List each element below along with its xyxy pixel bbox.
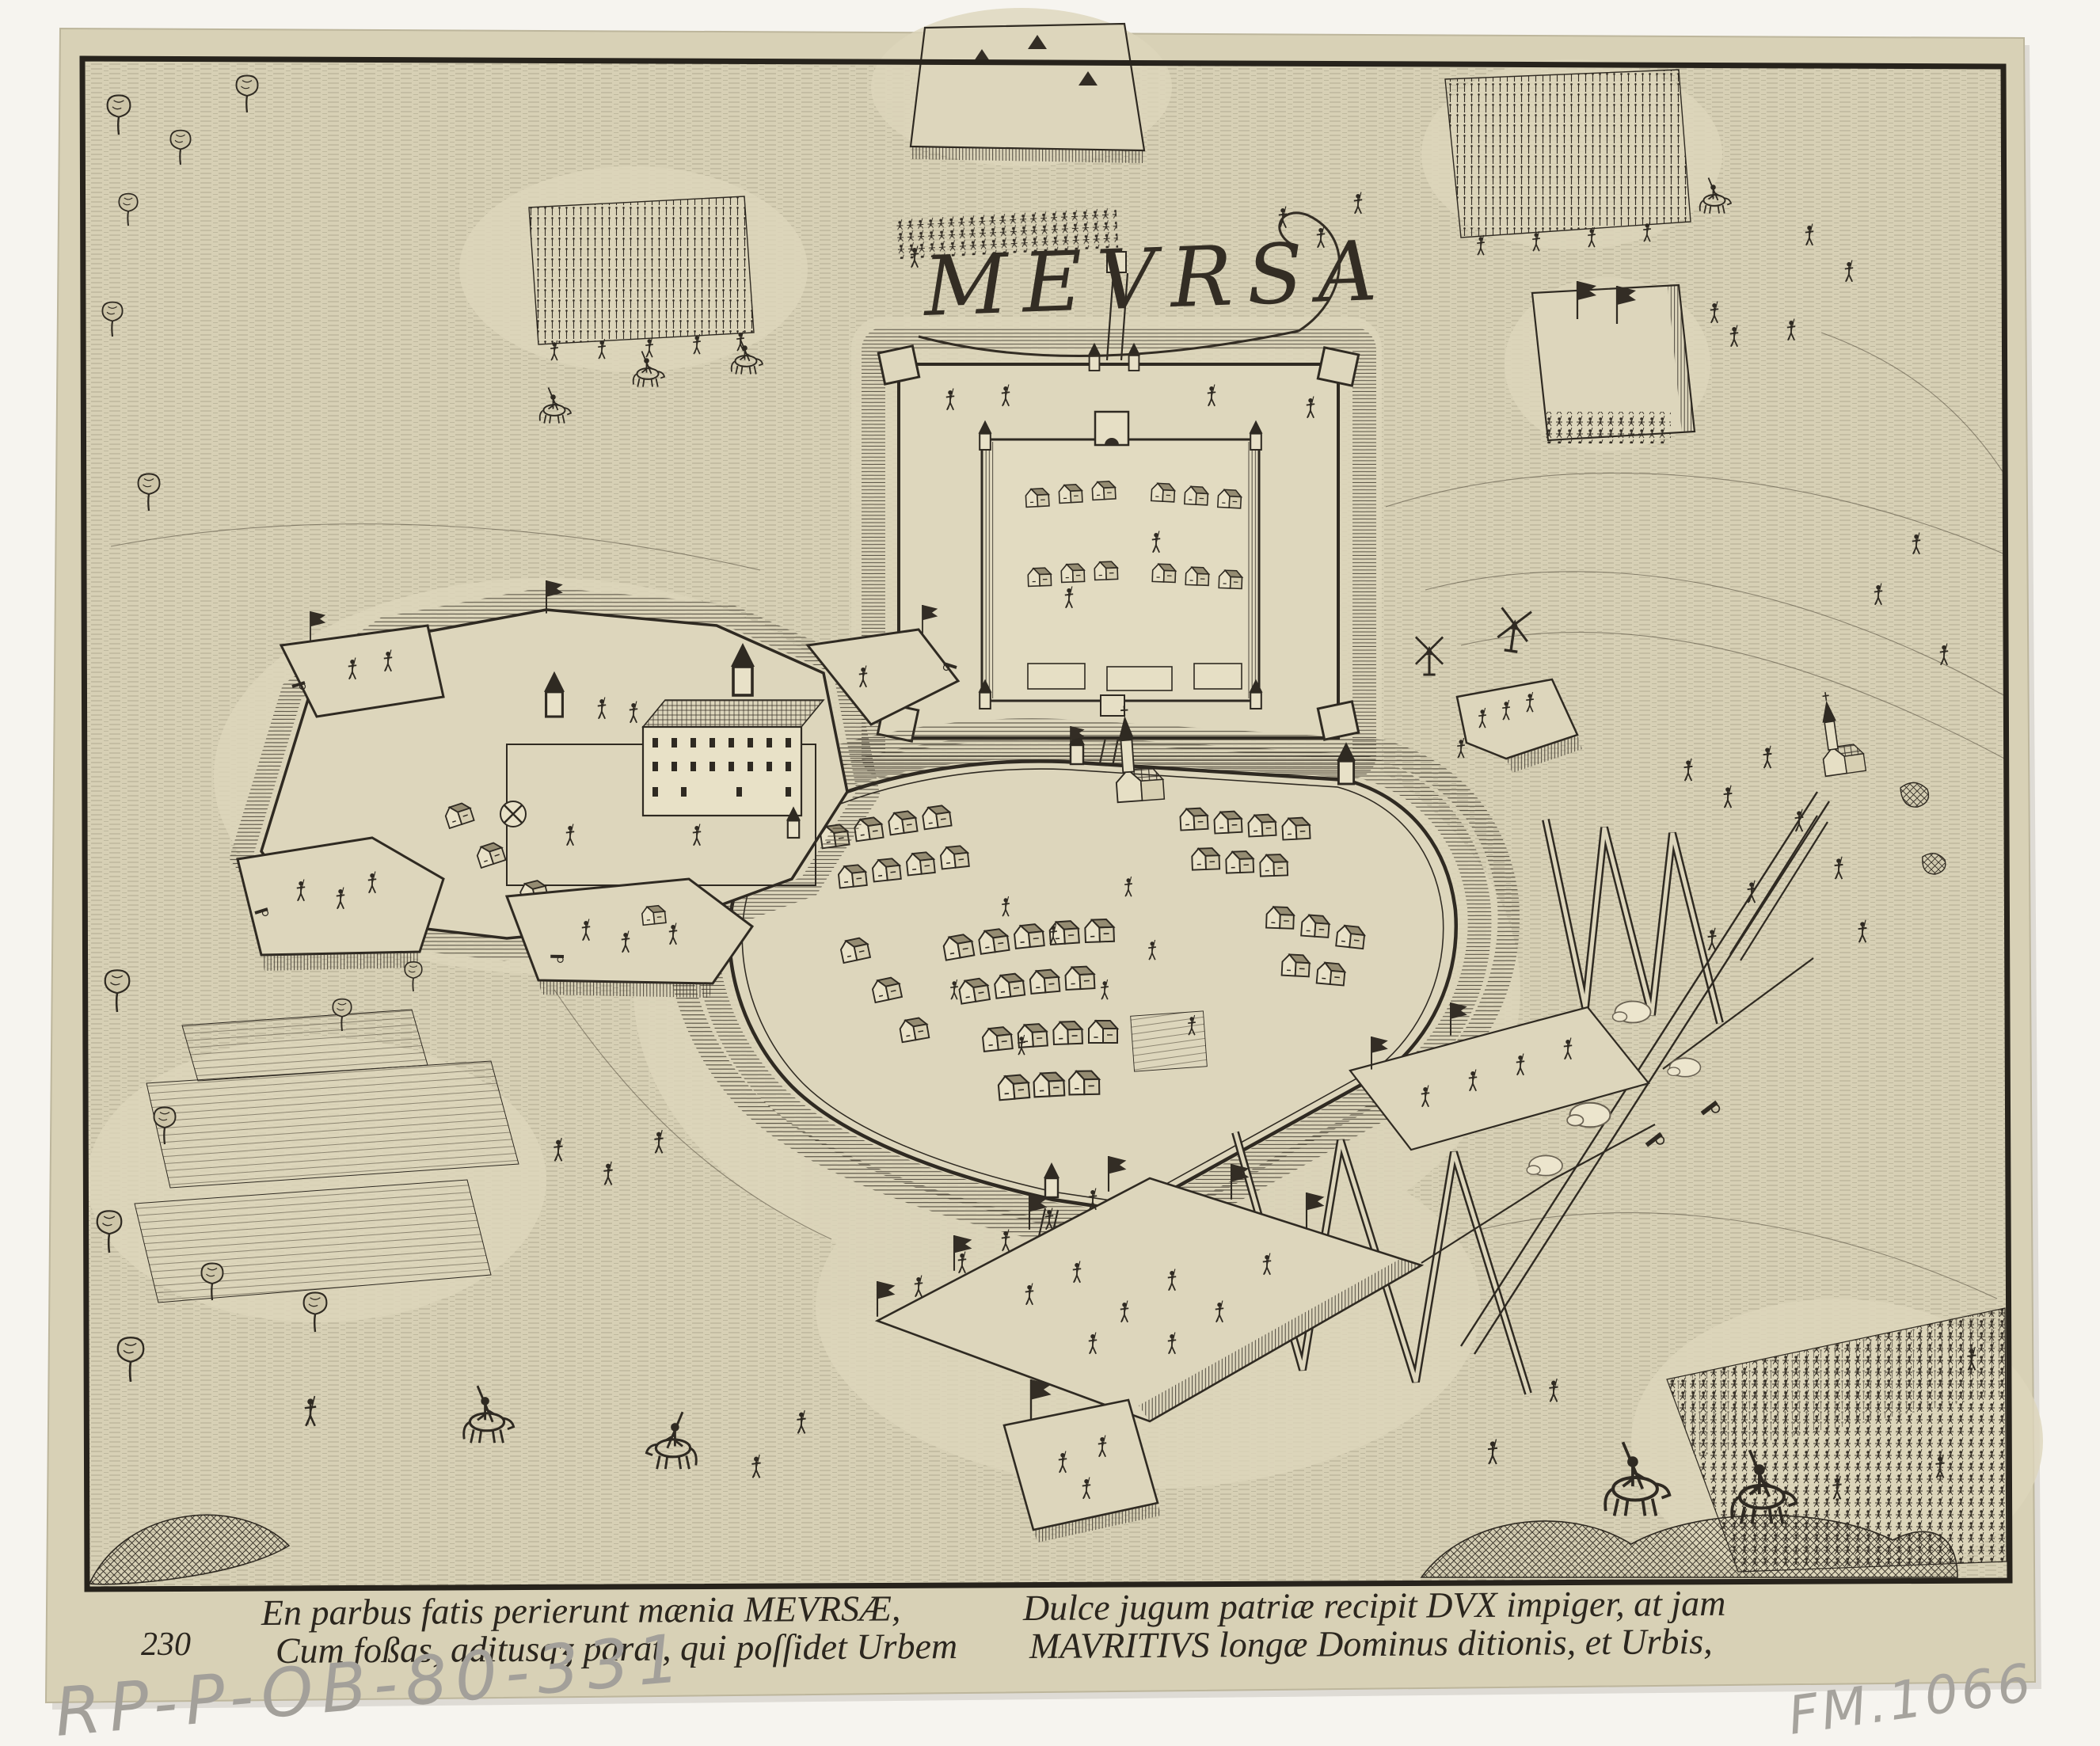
engraving-plate: MEVRSA	[82, 8, 2043, 1589]
etching-scan: MEVRSA 230 En parbus fatis perierunt mæn…	[0, 0, 2100, 1746]
fort-wall-shading	[1247, 442, 1257, 698]
series-number: 230	[141, 1626, 191, 1663]
saltire-badge	[500, 801, 526, 827]
caption-right-line2: MAVRITIVS longæ Dominus ditionis, et Urb…	[1029, 1621, 1713, 1666]
title-text: MEVRSA	[921, 222, 1393, 335]
castle-main-building	[643, 727, 801, 816]
fort-inner-wall	[982, 439, 1259, 701]
camp-top-center	[896, 24, 1144, 259]
fort-wall-shading	[984, 442, 994, 698]
camp-soldier-row	[1544, 412, 1671, 443]
town-garden	[1131, 1011, 1208, 1071]
castle-roof	[643, 700, 824, 727]
